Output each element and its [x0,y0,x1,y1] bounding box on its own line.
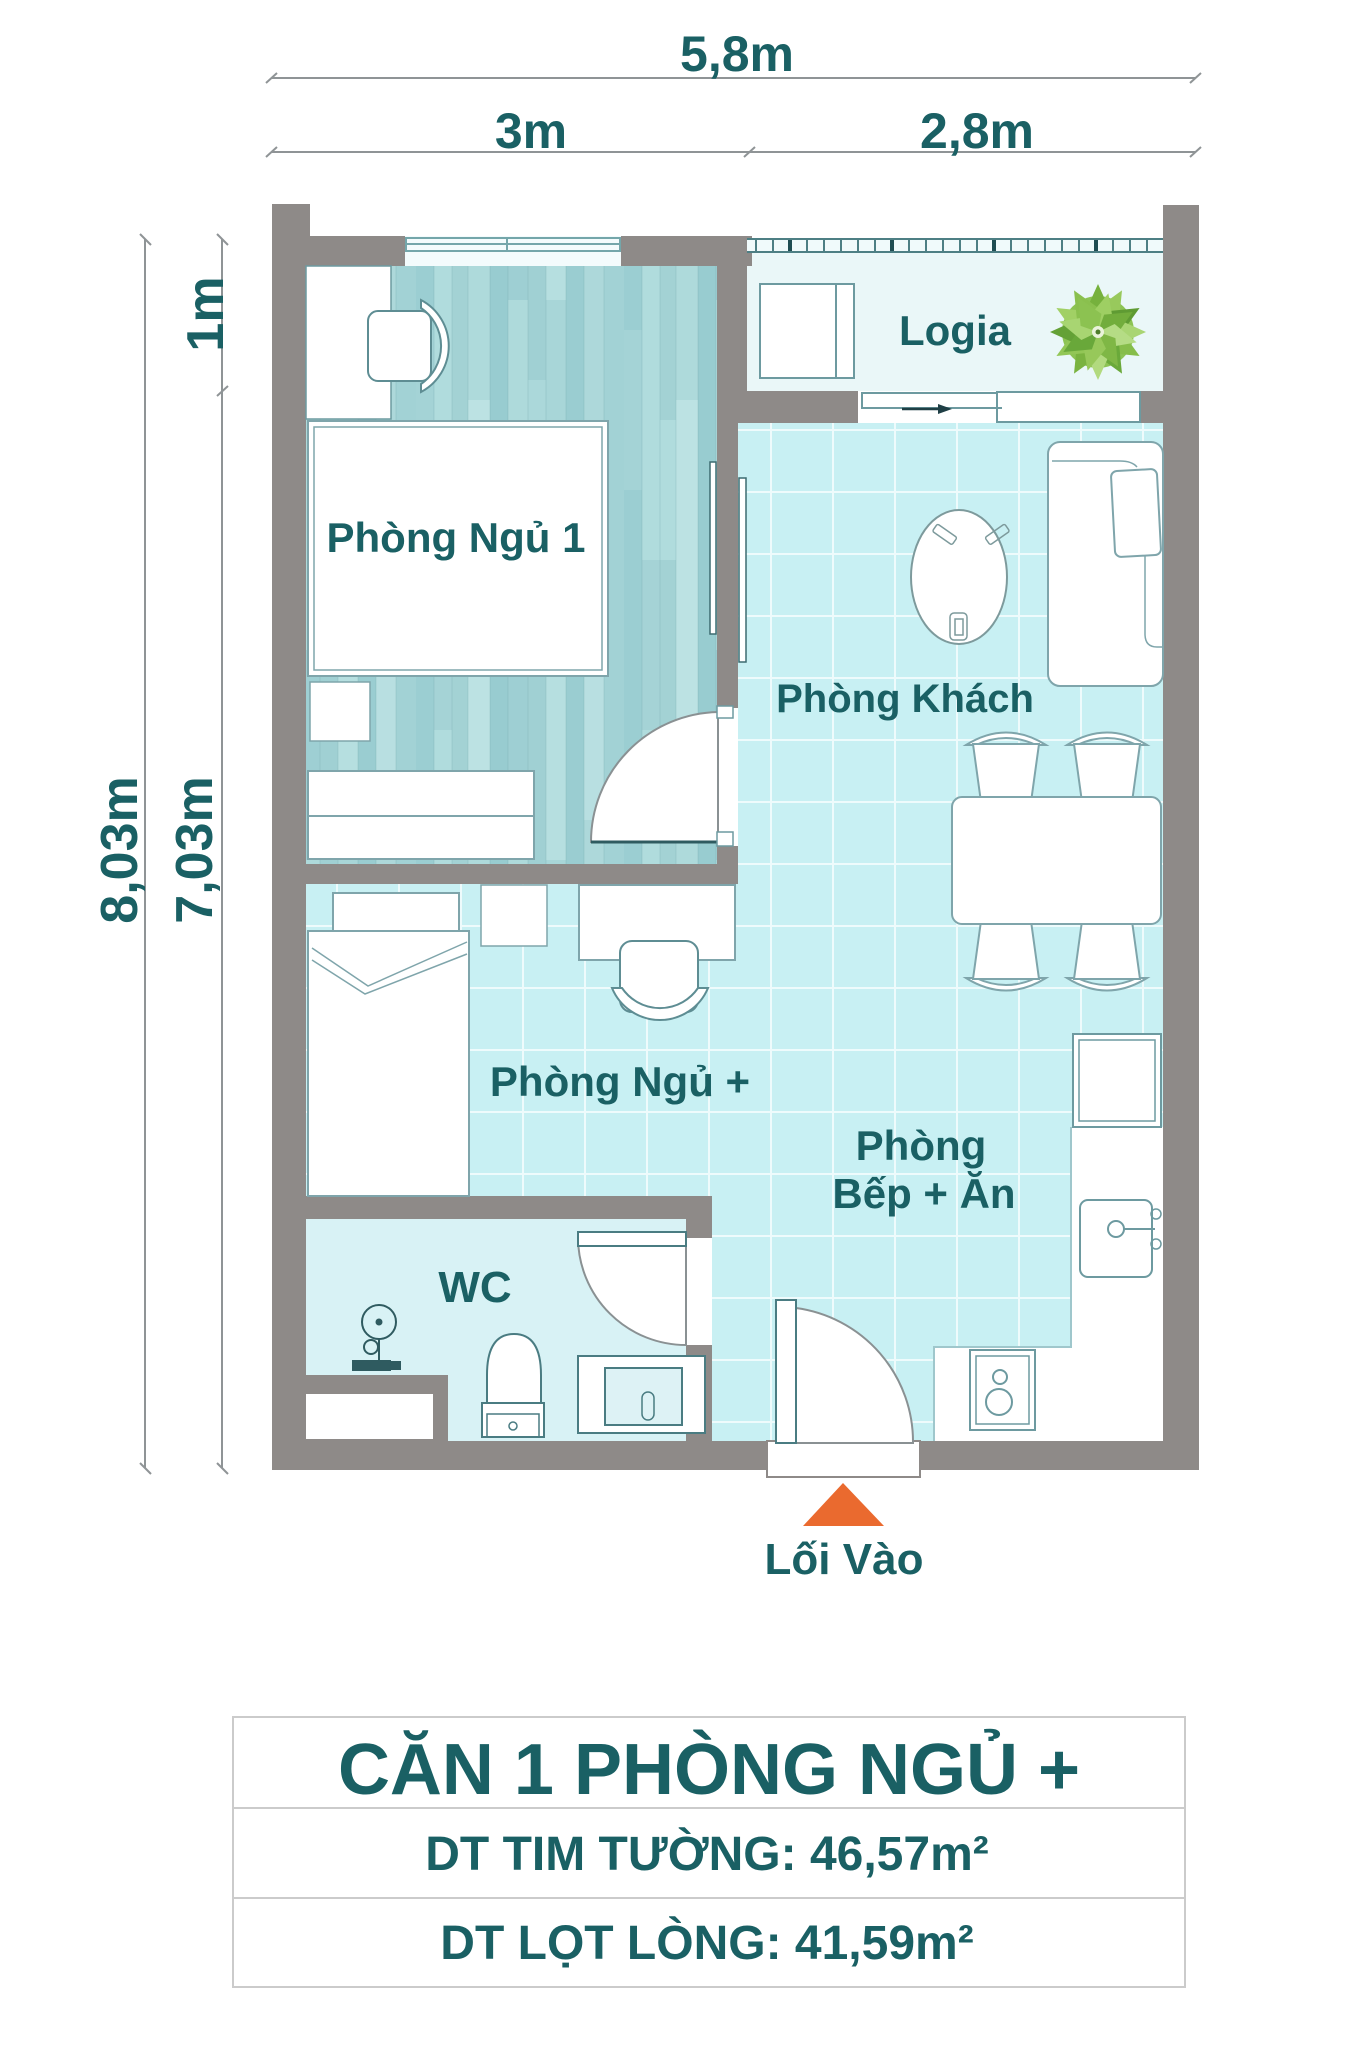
svg-text:CĂN 1 PHÒNG NGỦ +: CĂN 1 PHÒNG NGỦ + [338,1729,1080,1810]
svg-text:8,03m: 8,03m [91,776,149,923]
svg-text:Logia: Logia [899,307,1012,354]
svg-text:DT TIM TƯỜNG: 46,57m²: DT TIM TƯỜNG: 46,57m² [425,1826,988,1881]
svg-text:Phòng: Phòng [856,1122,987,1169]
svg-text:Lối Vào: Lối Vào [765,1535,924,1584]
svg-text:Phòng Khách: Phòng Khách [776,677,1034,721]
svg-text:7,03m: 7,03m [166,776,224,923]
svg-text:5,8m: 5,8m [680,26,794,82]
svg-text:DT LỌT LÒNG: 41,59m²: DT LỌT LÒNG: 41,59m² [440,1915,973,1970]
svg-text:Phòng Ngủ 1: Phòng Ngủ 1 [327,514,586,561]
svg-text:1m: 1m [177,276,235,351]
svg-text:3m: 3m [495,103,567,159]
svg-text:Bếp + Ăn: Bếp + Ăn [832,1170,1015,1217]
svg-text:WC: WC [438,1263,511,1312]
svg-text:2,8m: 2,8m [920,103,1034,159]
svg-text:Phòng Ngủ +: Phòng Ngủ + [490,1058,750,1105]
